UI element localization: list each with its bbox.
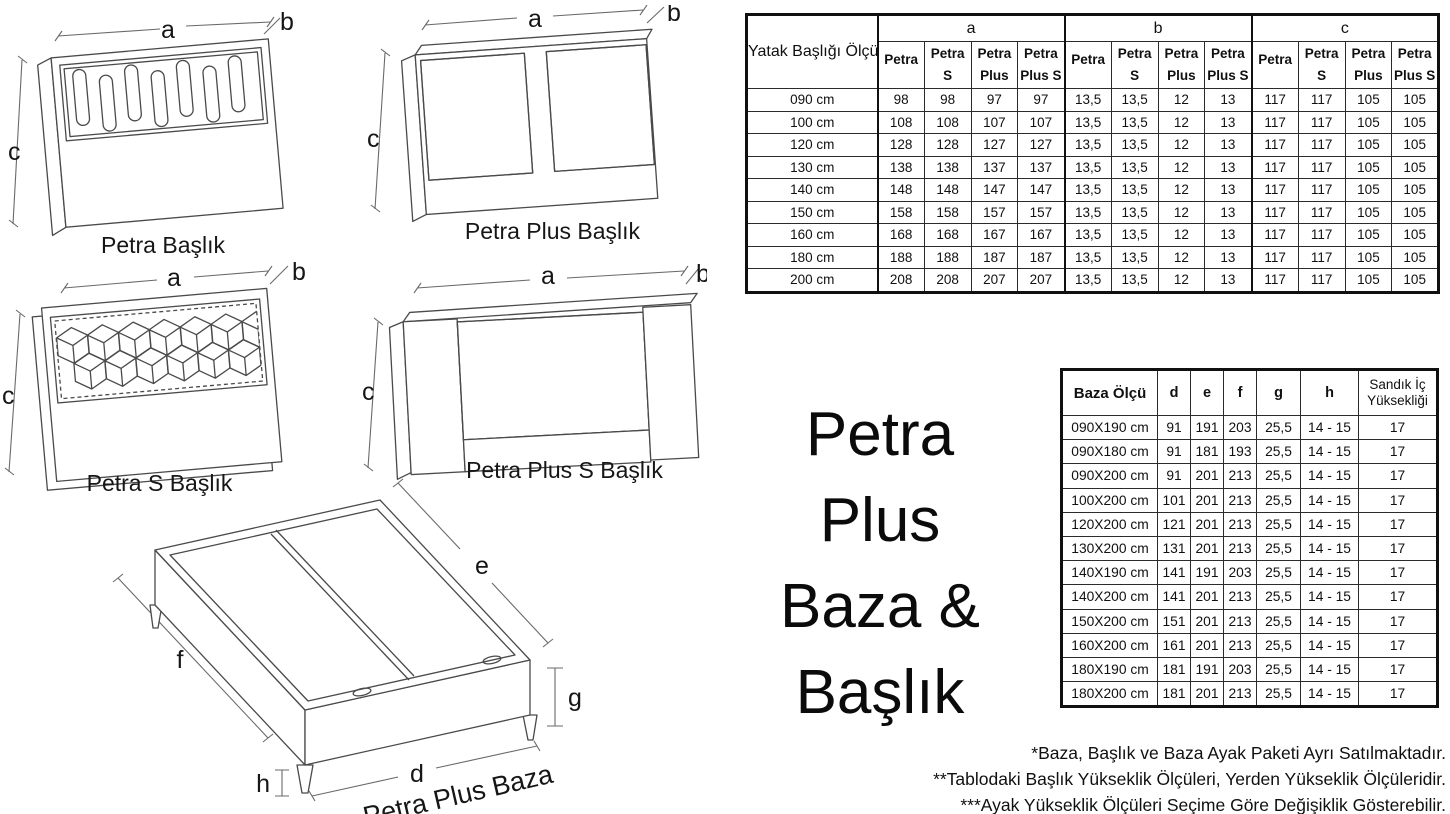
petra-s-baslik-drawing: a b c Petra S Başlık — [2, 262, 317, 500]
value-cell: 13,5 — [1111, 134, 1158, 157]
value-cell: 13,5 — [1111, 111, 1158, 134]
baza-row: 140X190 cm14119120325,514 - 1517 — [1062, 561, 1438, 585]
dim-c-label: c — [8, 138, 21, 166]
value-cell: 25,5 — [1257, 512, 1301, 536]
size-cell: 180 cm — [747, 246, 878, 269]
value-cell: 13 — [1205, 179, 1252, 202]
size-cell: 150X200 cm — [1062, 609, 1158, 633]
headboard-tbody: 090 cm9898979713,513,5121311711710510510… — [747, 89, 1439, 293]
value-cell: 14 - 15 — [1301, 512, 1359, 536]
value-cell: 105 — [1392, 224, 1439, 247]
value-cell: 13,5 — [1065, 269, 1112, 293]
value-cell: 148 — [878, 179, 925, 202]
footnotes: *Baza, Başlık ve Baza Ayak Paketi Ayrı S… — [933, 740, 1446, 814]
value-cell: 13 — [1205, 111, 1252, 134]
value-cell: 181 — [1191, 440, 1224, 464]
value-cell: 117 — [1298, 111, 1345, 134]
size-cell: 090 cm — [747, 89, 878, 112]
value-cell: 201 — [1191, 633, 1224, 657]
value-cell: 98 — [924, 89, 971, 112]
value-cell: 14 - 15 — [1301, 633, 1359, 657]
value-cell: 105 — [1345, 224, 1392, 247]
variant-header: Petra — [1065, 42, 1112, 89]
value-cell: 12 — [1158, 89, 1205, 112]
value-cell: 13,5 — [1065, 246, 1112, 269]
value-cell: 128 — [924, 134, 971, 157]
dim-b-label: b — [280, 12, 294, 36]
value-cell: 213 — [1224, 585, 1257, 609]
value-cell: 108 — [924, 111, 971, 134]
value-cell: 14 - 15 — [1301, 561, 1359, 585]
petra-plus-baza-drawing: e f d g h Petra Plus — [100, 470, 620, 814]
value-cell: 17 — [1359, 440, 1438, 464]
value-cell: 117 — [1298, 224, 1345, 247]
value-cell: 141 — [1158, 561, 1191, 585]
title-line-2: Plus — [690, 478, 1070, 564]
value-cell: 207 — [971, 269, 1018, 293]
value-cell: 14 - 15 — [1301, 464, 1359, 488]
headboard-row: 120 cm12812812712713,513,512131171171051… — [747, 134, 1439, 157]
value-cell: 13,5 — [1065, 89, 1112, 112]
value-cell: 201 — [1191, 609, 1224, 633]
value-cell: 147 — [971, 179, 1018, 202]
dim-a-label: a — [161, 16, 175, 44]
size-cell: 100X200 cm — [1062, 488, 1158, 512]
variant-header: PetraS — [1111, 42, 1158, 89]
variant-header: Petra — [878, 42, 925, 89]
value-cell: 12 — [1158, 269, 1205, 293]
headboard-body — [32, 288, 287, 490]
value-cell: 213 — [1224, 464, 1257, 488]
variant-header: PetraS — [1298, 42, 1345, 89]
dim-a-label: a — [528, 5, 542, 33]
value-cell: 17 — [1359, 464, 1438, 488]
size-cell: 140 cm — [747, 179, 878, 202]
value-cell: 105 — [1392, 246, 1439, 269]
size-cell: 130X200 cm — [1062, 536, 1158, 560]
value-cell: 105 — [1345, 269, 1392, 293]
value-cell: 167 — [971, 224, 1018, 247]
baza-header-d: d — [1158, 370, 1191, 416]
value-cell: 13 — [1205, 134, 1252, 157]
value-cell: 181 — [1158, 682, 1191, 707]
value-cell: 12 — [1158, 201, 1205, 224]
value-cell: 191 — [1191, 561, 1224, 585]
size-cell: 200 cm — [747, 269, 878, 293]
value-cell: 12 — [1158, 156, 1205, 179]
value-cell: 107 — [971, 111, 1018, 134]
headboard-row: 180 cm18818818718713,513,512131171171051… — [747, 246, 1439, 269]
value-cell: 105 — [1345, 134, 1392, 157]
value-cell: 128 — [878, 134, 925, 157]
value-cell: 13,5 — [1111, 224, 1158, 247]
value-cell: 105 — [1392, 134, 1439, 157]
value-cell: 14 - 15 — [1301, 488, 1359, 512]
value-cell: 14 - 15 — [1301, 416, 1359, 440]
value-cell: 201 — [1191, 585, 1224, 609]
value-cell: 91 — [1158, 464, 1191, 488]
value-cell: 17 — [1359, 609, 1438, 633]
headboard-body — [389, 293, 706, 479]
value-cell: 127 — [1018, 134, 1065, 157]
petra-plus-baza-art: e f d g h Petra Plus — [100, 470, 620, 814]
value-cell: 108 — [878, 111, 925, 134]
value-cell: 117 — [1252, 179, 1299, 202]
petra-plus-baslik-drawing: a b c Petra Plus Başlık — [365, 5, 685, 245]
value-cell: 13 — [1205, 156, 1252, 179]
baza-header-g: g — [1257, 370, 1301, 416]
value-cell: 207 — [1018, 269, 1065, 293]
value-cell: 12 — [1158, 179, 1205, 202]
value-cell: 117 — [1298, 269, 1345, 293]
dim-a-label: a — [541, 262, 555, 290]
value-cell: 97 — [1018, 89, 1065, 112]
headboard-table: Yatak Başlığı Ölçü a b c PetraPetraSPetr… — [745, 13, 1440, 294]
baza-size-header: Baza Ölçü — [1062, 370, 1158, 416]
size-cell: 130 cm — [747, 156, 878, 179]
value-cell: 117 — [1298, 179, 1345, 202]
value-cell: 148 — [924, 179, 971, 202]
value-cell: 105 — [1345, 246, 1392, 269]
value-cell: 25,5 — [1257, 561, 1301, 585]
value-cell: 13,5 — [1111, 201, 1158, 224]
baza-row: 090X190 cm9119120325,514 - 1517 — [1062, 416, 1438, 440]
value-cell: 105 — [1392, 269, 1439, 293]
petra-s-baslik-art: a b c — [2, 262, 317, 500]
value-cell: 117 — [1252, 89, 1299, 112]
value-cell: 117 — [1252, 156, 1299, 179]
value-cell: 117 — [1252, 134, 1299, 157]
headboard-row: 100 cm10810810710713,513,512131171171051… — [747, 111, 1439, 134]
value-cell: 191 — [1191, 657, 1224, 681]
page-title: Petra Plus Baza & Başlık — [690, 392, 1070, 736]
value-cell: 17 — [1359, 633, 1438, 657]
group-header-a: a — [878, 15, 1065, 42]
value-cell: 105 — [1392, 156, 1439, 179]
value-cell: 13 — [1205, 246, 1252, 269]
value-cell: 13,5 — [1111, 269, 1158, 293]
value-cell: 13,5 — [1065, 179, 1112, 202]
value-cell: 181 — [1158, 657, 1191, 681]
value-cell: 201 — [1191, 512, 1224, 536]
value-cell: 13,5 — [1111, 156, 1158, 179]
variant-header: PetraPlus S — [1392, 42, 1439, 89]
footnote-1: *Baza, Başlık ve Baza Ayak Paketi Ayrı S… — [933, 740, 1446, 766]
value-cell: 105 — [1345, 89, 1392, 112]
petra-baslik-caption: Petra Başlık — [8, 232, 318, 259]
value-cell: 13 — [1205, 224, 1252, 247]
value-cell: 168 — [878, 224, 925, 247]
value-cell: 25,5 — [1257, 585, 1301, 609]
value-cell: 25,5 — [1257, 536, 1301, 560]
value-cell: 187 — [1018, 246, 1065, 269]
value-cell: 187 — [971, 246, 1018, 269]
dim-d-label: d — [410, 760, 424, 788]
value-cell: 168 — [924, 224, 971, 247]
value-cell: 105 — [1392, 111, 1439, 134]
value-cell: 17 — [1359, 536, 1438, 560]
value-cell: 201 — [1191, 464, 1224, 488]
value-cell: 191 — [1191, 416, 1224, 440]
baza-row: 180X200 cm18120121325,514 - 1517 — [1062, 682, 1438, 707]
value-cell: 157 — [1018, 201, 1065, 224]
value-cell: 12 — [1158, 111, 1205, 134]
variant-header: Petra — [1252, 42, 1299, 89]
dim-c-label: c — [2, 382, 15, 410]
value-cell: 17 — [1359, 682, 1438, 707]
baza-header-storage: Sandık İç Yüksekliği — [1359, 370, 1438, 416]
value-cell: 158 — [878, 201, 925, 224]
value-cell: 138 — [878, 156, 925, 179]
value-cell: 13,5 — [1065, 201, 1112, 224]
title-line-3: Baza & Başlık — [690, 564, 1070, 736]
value-cell: 121 — [1158, 512, 1191, 536]
value-cell: 25,5 — [1257, 609, 1301, 633]
value-cell: 193 — [1224, 440, 1257, 464]
value-cell: 13,5 — [1065, 134, 1112, 157]
headboard-body — [401, 29, 665, 221]
petra-plus-baslik-caption: Petra Plus Başlık — [365, 218, 685, 245]
value-cell: 107 — [1018, 111, 1065, 134]
baza-row: 160X200 cm16120121325,514 - 1517 — [1062, 633, 1438, 657]
value-cell: 25,5 — [1257, 488, 1301, 512]
value-cell: 13 — [1205, 269, 1252, 293]
dim-b-label: b — [696, 262, 707, 288]
value-cell: 213 — [1224, 536, 1257, 560]
headboard-row: 160 cm16816816716713,513,512131171171051… — [747, 224, 1439, 247]
value-cell: 208 — [878, 269, 925, 293]
headboard-row: 090 cm9898979713,513,51213117117105105 — [747, 89, 1439, 112]
baza-header-row: Baza Ölçü d e f g h Sandık İç Yüksekliği — [1062, 370, 1438, 416]
dim-b-label: b — [292, 262, 306, 286]
value-cell: 117 — [1298, 246, 1345, 269]
value-cell: 101 — [1158, 488, 1191, 512]
headboard-row: 150 cm15815815715713,513,512131171171051… — [747, 201, 1439, 224]
value-cell: 13,5 — [1111, 179, 1158, 202]
size-cell: 100 cm — [747, 111, 878, 134]
value-cell: 17 — [1359, 512, 1438, 536]
size-cell: 090X200 cm — [1062, 464, 1158, 488]
value-cell: 213 — [1224, 609, 1257, 633]
value-cell: 91 — [1158, 440, 1191, 464]
petra-plus-s-baslik-drawing: a b c Petra Plus S Başlık — [362, 262, 707, 492]
value-cell: 12 — [1158, 134, 1205, 157]
headboard-row: 200 cm20820820720713,513,512131171171051… — [747, 269, 1439, 293]
footnote-3: ***Ayak Yükseklik Ölçüleri Seçime Göre D… — [933, 792, 1446, 814]
value-cell: 14 - 15 — [1301, 536, 1359, 560]
baza-row: 100X200 cm10120121325,514 - 1517 — [1062, 488, 1438, 512]
group-header-c: c — [1252, 15, 1439, 42]
baza-header-h: h — [1301, 370, 1359, 416]
value-cell: 213 — [1224, 682, 1257, 707]
value-cell: 14 - 15 — [1301, 585, 1359, 609]
value-cell: 105 — [1345, 111, 1392, 134]
petra-plus-baza-caption: Petra Plus Baza — [360, 759, 556, 814]
value-cell: 201 — [1191, 682, 1224, 707]
value-cell: 25,5 — [1257, 440, 1301, 464]
value-cell: 105 — [1392, 89, 1439, 112]
variant-header: PetraPlus S — [1205, 42, 1252, 89]
value-cell: 161 — [1158, 633, 1191, 657]
value-cell: 213 — [1224, 512, 1257, 536]
petra-baslik-art: a b c — [8, 12, 318, 262]
value-cell: 14 - 15 — [1301, 440, 1359, 464]
value-cell: 117 — [1298, 134, 1345, 157]
baza-row: 180X190 cm18119120325,514 - 1517 — [1062, 657, 1438, 681]
value-cell: 213 — [1224, 488, 1257, 512]
value-cell: 17 — [1359, 561, 1438, 585]
value-cell: 14 - 15 — [1301, 609, 1359, 633]
storage-header-line2: Yüksekliği — [1359, 393, 1436, 409]
value-cell: 12 — [1158, 224, 1205, 247]
size-cell: 180X200 cm — [1062, 682, 1158, 707]
baza-row: 090X200 cm9120121325,514 - 1517 — [1062, 464, 1438, 488]
value-cell: 13 — [1205, 201, 1252, 224]
dim-a-label: a — [167, 264, 181, 292]
dim-b-label: b — [667, 5, 681, 27]
value-cell: 13,5 — [1065, 111, 1112, 134]
value-cell: 131 — [1158, 536, 1191, 560]
petra-plus-baslik-art: a b c — [365, 5, 685, 245]
value-cell: 208 — [924, 269, 971, 293]
dim-g-label: g — [568, 684, 582, 712]
storage-header-line1: Sandık İç — [1359, 377, 1436, 393]
value-cell: 105 — [1345, 179, 1392, 202]
size-cell: 120 cm — [747, 134, 878, 157]
value-cell: 25,5 — [1257, 657, 1301, 681]
footnote-2: **Tablodaki Başlık Yükseklik Ölçüleri, Y… — [933, 766, 1446, 792]
value-cell: 203 — [1224, 657, 1257, 681]
value-cell: 117 — [1298, 201, 1345, 224]
baza-row: 090X180 cm9118119325,514 - 1517 — [1062, 440, 1438, 464]
size-cell: 160X200 cm — [1062, 633, 1158, 657]
value-cell: 105 — [1345, 201, 1392, 224]
value-cell: 138 — [924, 156, 971, 179]
dim-e-label: e — [475, 552, 489, 580]
value-cell: 105 — [1392, 201, 1439, 224]
value-cell: 147 — [1018, 179, 1065, 202]
value-cell: 158 — [924, 201, 971, 224]
value-cell: 14 - 15 — [1301, 682, 1359, 707]
variant-header: PetraPlus — [971, 42, 1018, 89]
value-cell: 203 — [1224, 416, 1257, 440]
value-cell: 25,5 — [1257, 464, 1301, 488]
spec-sheet-page: a b c Petra Başlık — [0, 0, 1450, 814]
value-cell: 25,5 — [1257, 416, 1301, 440]
baza-row: 150X200 cm15120121325,514 - 1517 — [1062, 609, 1438, 633]
value-cell: 151 — [1158, 609, 1191, 633]
headboard-row: 140 cm14814814714713,513,512131171171051… — [747, 179, 1439, 202]
corner-header: Yatak Başlığı Ölçü — [747, 15, 878, 89]
size-cell: 090X180 cm — [1062, 440, 1158, 464]
value-cell: 13 — [1205, 89, 1252, 112]
value-cell: 203 — [1224, 561, 1257, 585]
size-cell: 150 cm — [747, 201, 878, 224]
variant-header: PetraPlus S — [1018, 42, 1065, 89]
value-cell: 188 — [924, 246, 971, 269]
title-line-1: Petra — [690, 392, 1070, 478]
baza-row: 130X200 cm13120121325,514 - 1517 — [1062, 536, 1438, 560]
value-cell: 91 — [1158, 416, 1191, 440]
variant-header: PetraS — [924, 42, 971, 89]
baza-row: 120X200 cm12120121325,514 - 1517 — [1062, 512, 1438, 536]
value-cell: 157 — [971, 201, 1018, 224]
value-cell: 97 — [971, 89, 1018, 112]
value-cell: 13,5 — [1065, 156, 1112, 179]
value-cell: 117 — [1252, 201, 1299, 224]
value-cell: 17 — [1359, 585, 1438, 609]
headboard-row: 130 cm13813813713713,513,512131171171051… — [747, 156, 1439, 179]
value-cell: 201 — [1191, 536, 1224, 560]
value-cell: 13,5 — [1065, 224, 1112, 247]
value-cell: 117 — [1252, 224, 1299, 247]
value-cell: 127 — [971, 134, 1018, 157]
value-cell: 25,5 — [1257, 633, 1301, 657]
value-cell: 17 — [1359, 488, 1438, 512]
baza-header-f: f — [1224, 370, 1257, 416]
value-cell: 167 — [1018, 224, 1065, 247]
group-header-row: Yatak Başlığı Ölçü a b c — [747, 15, 1439, 42]
size-cell: 140X190 cm — [1062, 561, 1158, 585]
dim-c-label: c — [362, 378, 375, 406]
value-cell: 17 — [1359, 416, 1438, 440]
baza-body — [150, 500, 537, 793]
value-cell: 105 — [1392, 179, 1439, 202]
variant-header: PetraPlus — [1158, 42, 1205, 89]
value-cell: 25,5 — [1257, 682, 1301, 707]
baza-header-e: e — [1191, 370, 1224, 416]
value-cell: 188 — [878, 246, 925, 269]
value-cell: 141 — [1158, 585, 1191, 609]
value-cell: 117 — [1252, 246, 1299, 269]
size-cell: 090X190 cm — [1062, 416, 1158, 440]
size-cell: 180X190 cm — [1062, 657, 1158, 681]
dim-c-label: c — [367, 125, 380, 153]
value-cell: 12 — [1158, 246, 1205, 269]
baza-row: 140X200 cm14120121325,514 - 1517 — [1062, 585, 1438, 609]
dim-h-label: h — [256, 770, 270, 798]
variant-header: PetraPlus — [1345, 42, 1392, 89]
value-cell: 13,5 — [1111, 89, 1158, 112]
size-cell: 160 cm — [747, 224, 878, 247]
baza-table: Baza Ölçü d e f g h Sandık İç Yüksekliği… — [1060, 368, 1439, 708]
petra-baslik-drawing: a b c Petra Başlık — [8, 12, 318, 262]
size-cell: 140X200 cm — [1062, 585, 1158, 609]
headboard-body — [37, 39, 284, 236]
baza-tbody: 090X190 cm9119120325,514 - 1517090X180 c… — [1062, 416, 1438, 707]
value-cell: 201 — [1191, 488, 1224, 512]
value-cell: 213 — [1224, 633, 1257, 657]
value-cell: 117 — [1298, 89, 1345, 112]
value-cell: 137 — [1018, 156, 1065, 179]
value-cell: 137 — [971, 156, 1018, 179]
value-cell: 13,5 — [1111, 246, 1158, 269]
value-cell: 98 — [878, 89, 925, 112]
value-cell: 17 — [1359, 657, 1438, 681]
dim-f-label: f — [177, 646, 184, 674]
group-header-b: b — [1065, 15, 1252, 42]
value-cell: 14 - 15 — [1301, 657, 1359, 681]
value-cell: 105 — [1345, 156, 1392, 179]
value-cell: 117 — [1252, 111, 1299, 134]
size-cell: 120X200 cm — [1062, 512, 1158, 536]
value-cell: 117 — [1298, 156, 1345, 179]
value-cell: 117 — [1252, 269, 1299, 293]
